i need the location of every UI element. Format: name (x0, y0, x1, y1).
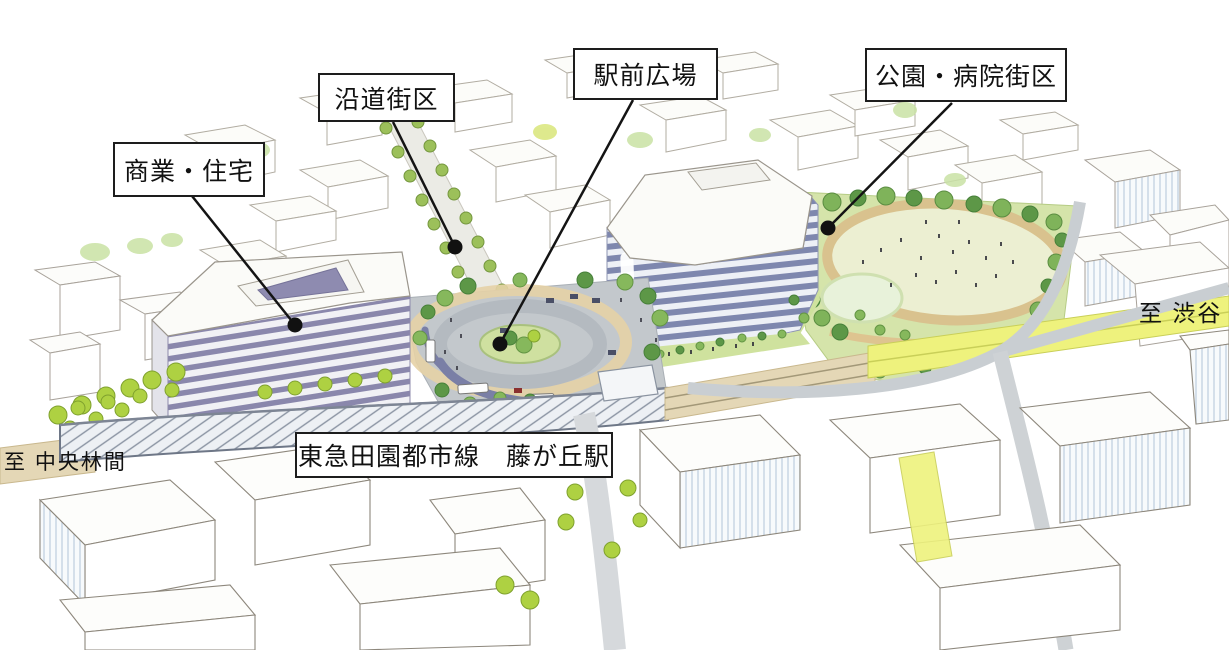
sketch-building (30, 332, 100, 400)
direction-to-shibuya: 至 渋谷 (1139, 294, 1222, 328)
leader-dot-park-hospital (821, 221, 836, 236)
sketch-building (1180, 330, 1229, 424)
sketch-building (525, 185, 610, 248)
sketch-building (40, 480, 215, 605)
label-station-plaza: 駅前広場 (573, 48, 718, 100)
sketch-building (640, 96, 726, 152)
sketch-building (330, 548, 530, 650)
direction-to-chuo-rinkan: 至 中央林間 (4, 446, 127, 476)
label-railway-station: 東急田園都市線 藤が丘駅 (295, 432, 613, 478)
sketch-building (1000, 112, 1078, 160)
leader-dot-roadside (448, 240, 463, 255)
leader-dot-plaza (493, 337, 508, 352)
label-commercial-residential: 商業・住宅 (113, 142, 265, 197)
sketch-building (640, 415, 800, 548)
label-roadside-block: 沿道街区 (318, 73, 455, 122)
label-park-hospital-block: 公園・病院街区 (865, 48, 1067, 102)
station-house (598, 365, 658, 401)
sketch-building (1020, 392, 1190, 523)
sketch-building (35, 262, 120, 340)
sketch-building (770, 110, 858, 170)
leader-dot-commercial (288, 318, 303, 333)
redevelopment-rendering: 商業・住宅 沿道街区 駅前広場 公園・病院街区 東急田園都市線 藤が丘駅 至 渋… (0, 0, 1229, 650)
